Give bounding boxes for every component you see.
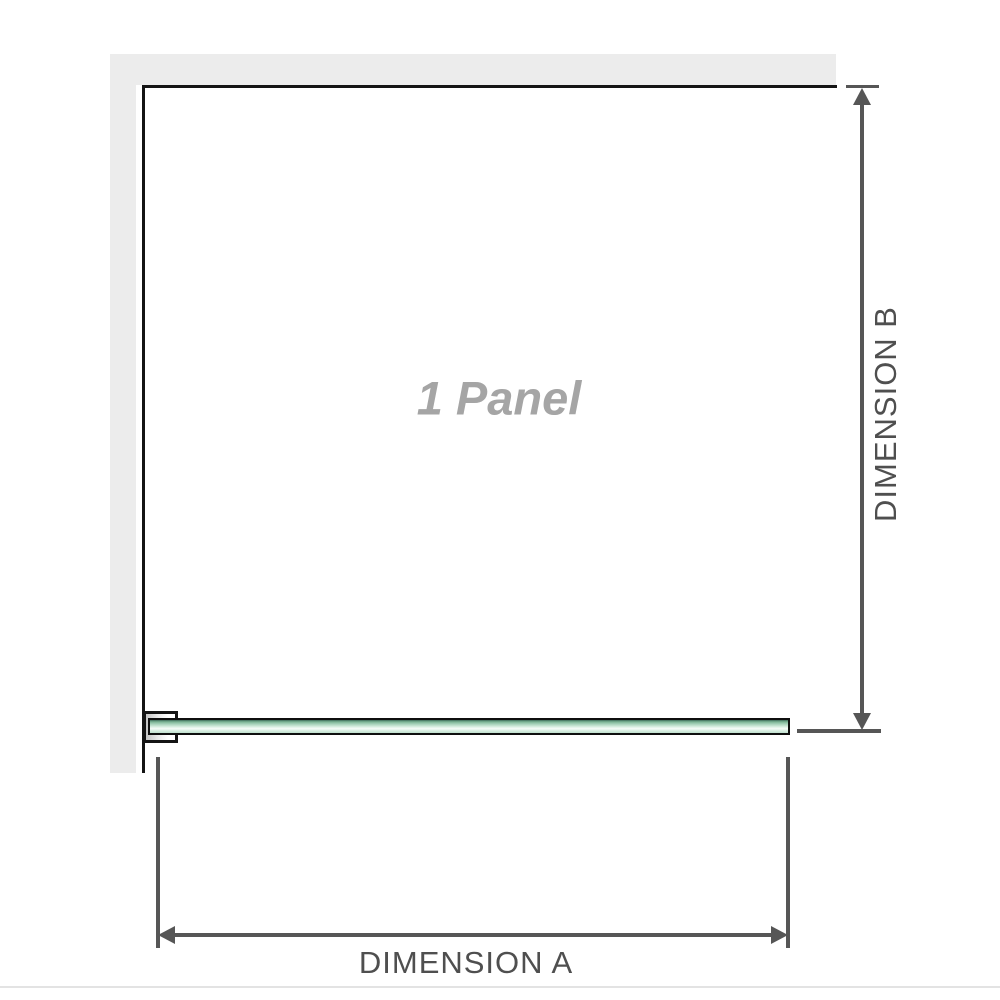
dimension-a-label: DIMENSION A — [359, 945, 573, 981]
panel-top-edge — [142, 85, 837, 88]
dimension-a-right-tick — [786, 757, 790, 948]
panel-dimension-diagram: 1 Panel DIMENSION B DIMENSION A — [0, 0, 1000, 1000]
glass-panel — [148, 718, 790, 735]
panel-count-watermark: 1 Panel — [417, 371, 582, 426]
panel-left-edge — [142, 85, 145, 773]
wall-top — [110, 54, 836, 85]
dimension-b-label: DIMENSION B — [868, 306, 904, 522]
dimension-a-line — [166, 933, 780, 937]
dimension-b-line — [860, 97, 864, 718]
dimension-a-left-tick — [156, 757, 160, 948]
arrowhead-down-icon — [853, 713, 871, 730]
wall-left — [110, 54, 136, 773]
arrowhead-up-icon — [853, 88, 871, 105]
arrowhead-right-icon — [771, 926, 788, 944]
page-bottom-divider — [0, 986, 1000, 988]
arrowhead-left-icon — [158, 926, 175, 944]
